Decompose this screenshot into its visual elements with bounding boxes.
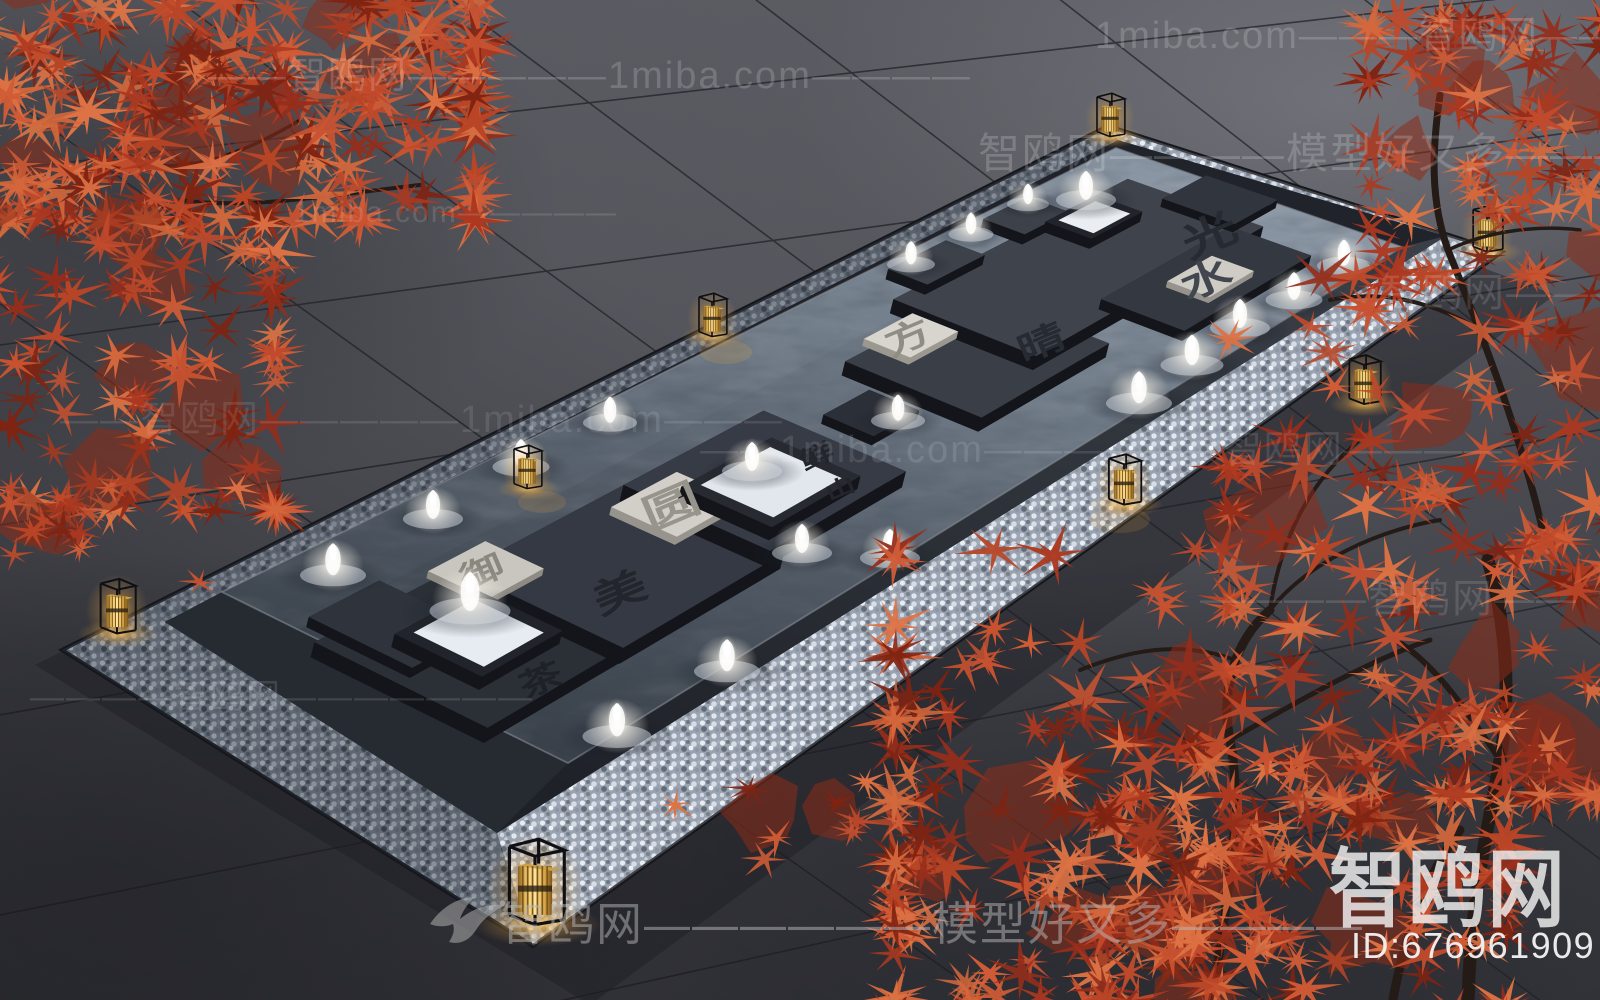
svg-text:1miba.com———智鸥网————: 1miba.com———智鸥网————: [1095, 15, 1600, 57]
svg-text:1miba.com—————: 1miba.com—————: [293, 196, 618, 229]
svg-text:————智鸥网———————: ————智鸥网———————: [30, 678, 534, 716]
svg-text:——1miba.com——————智鸥网————: ——1miba.com——————智鸥网————: [700, 429, 1504, 471]
svg-text:——智鸥网—————1miba.com———: ——智鸥网—————1miba.com———: [60, 399, 784, 441]
svg-text:————智鸥网——: ————智鸥网——: [1200, 577, 1578, 621]
svg-text:——智鸥网—————1miba.com————: ——智鸥网—————1miba.com————: [208, 55, 972, 97]
svg-text:智鸥网———: 智鸥网———: [1380, 271, 1600, 315]
svg-text:ID:676961909: ID:676961909: [1351, 925, 1595, 966]
svg-text:智鸥网: 智鸥网: [1329, 842, 1567, 938]
svg-text:智鸥网——————模型好又多————: 智鸥网——————模型好又多————: [500, 898, 1364, 950]
svg-text:智鸥网————模型好又多————: 智鸥网————模型好又多————: [978, 130, 1600, 177]
